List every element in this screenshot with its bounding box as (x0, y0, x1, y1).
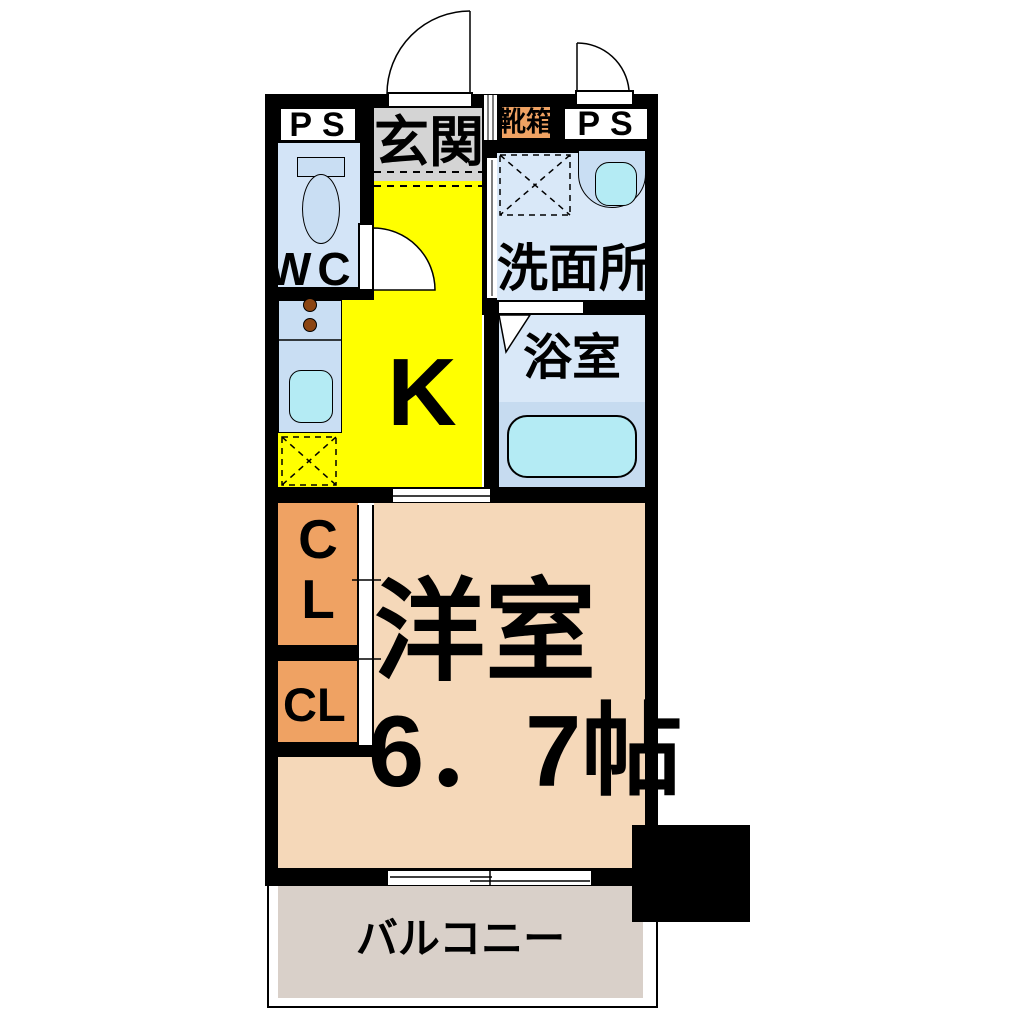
floor-plan: PS 靴箱 PS 玄関 WC 洗面所 浴室 K C L CL 洋室 6．7帖 バ… (0, 0, 1020, 1020)
entrance-door-swing (387, 11, 470, 94)
closet-lower-label: CL (283, 681, 346, 728)
balcony-sliding-window (387, 870, 592, 886)
shoebox-side-strip (484, 95, 497, 140)
kitchen-sink (289, 370, 333, 423)
balcony-label: バルコニー (278, 918, 643, 960)
structural-pillar (632, 825, 750, 922)
entrance-door-leaf (387, 92, 473, 108)
western-room-label: 洋室 (374, 577, 596, 688)
washbasin-bowl (595, 162, 637, 206)
closet-upper-label-l: L (278, 572, 358, 627)
ps-box-left: PS (278, 106, 358, 143)
wall-wc-right (360, 140, 374, 300)
washroom-pocket-door (487, 158, 497, 298)
kitchen-floor-left (342, 300, 374, 490)
shoebox-box: 靴箱 (499, 104, 553, 141)
kitchen-room-doorway (393, 489, 490, 502)
sub-door-swing (577, 43, 629, 90)
shoebox-label: 靴箱 (499, 109, 553, 136)
washroom-label: 洗面所 (497, 243, 650, 294)
stove-burner (303, 318, 317, 332)
kitchen-floor-fridge-area (278, 430, 344, 490)
western-room-floor-left (278, 755, 376, 871)
bathroom-label: 浴室 (499, 334, 645, 383)
wall-closet-mid (265, 645, 357, 661)
closet-upper-label-c: C (278, 512, 358, 567)
bathtub (507, 415, 637, 478)
kitchen-label: K (372, 345, 472, 441)
washroom-bath-door-gap (499, 302, 583, 313)
entrance-label: 玄関 (374, 115, 480, 170)
western-room-size: 6．7帖 (368, 702, 682, 803)
wc-label: WC (268, 246, 357, 292)
stove-burner (303, 298, 317, 312)
wall-bath-left (484, 315, 499, 489)
ps-right-label: PS (577, 107, 642, 141)
toilet-bowl (302, 174, 340, 244)
ps-left-label: PS (289, 108, 354, 142)
sub-door-leaf (575, 90, 634, 106)
ps-box-right: PS (562, 106, 650, 142)
